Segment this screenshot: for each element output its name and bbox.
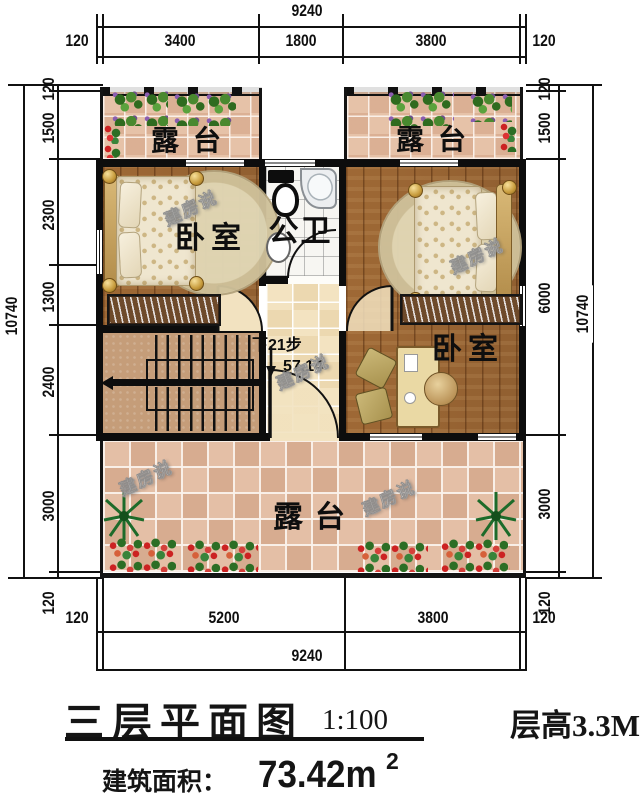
dim-tick: [526, 434, 566, 436]
stair-direction-arrow: [101, 376, 113, 390]
pillow: [118, 181, 142, 228]
plan-scale: 1:100: [322, 704, 388, 737]
bed-post: [102, 169, 117, 184]
dim-right-segment: 6000: [535, 273, 555, 322]
window: [478, 433, 516, 441]
dim-line: [97, 631, 526, 633]
title-underline: [65, 737, 424, 741]
room-label-terrace-top-left: 露台: [148, 119, 238, 159]
dim-line: [97, 26, 526, 28]
dim-tick: [49, 264, 103, 266]
dim-top-segment: 120: [519, 31, 568, 51]
dim-tick: [102, 578, 104, 671]
area-label: 建筑面积：: [102, 762, 227, 798]
flower-pot: [102, 124, 122, 158]
dim-tick: [49, 158, 103, 160]
bathtub: [296, 165, 340, 211]
terrace-wall: [523, 441, 526, 578]
teacup: [404, 392, 416, 404]
toilet-tank: [268, 170, 294, 183]
room-label-bathroom: 公卫: [258, 206, 343, 250]
dim-left-segment: 2300: [39, 190, 59, 239]
dim-left-segment: 1300: [39, 272, 59, 321]
dim-top-segment: 3400: [147, 31, 213, 51]
dim-tick: [49, 571, 103, 573]
dim-right-total: 10740: [573, 285, 593, 342]
area-value: 73.42m: [258, 754, 377, 797]
terrace-wall: [259, 88, 262, 159]
window: [96, 230, 103, 274]
dim-right-segment: 3000: [535, 479, 555, 528]
dim-left-segment: 1500: [39, 103, 59, 152]
wardrobe: [107, 294, 221, 326]
door-arc: [344, 284, 394, 333]
dim-tick: [526, 571, 566, 573]
room-label-bedroom-right: 卧室: [423, 324, 513, 368]
flower-pot: [498, 122, 520, 152]
window: [370, 433, 422, 441]
dim-tick: [526, 158, 566, 160]
terrace-wall: [100, 573, 526, 578]
bed-post: [189, 276, 204, 291]
dim-bottom-segment: 120: [52, 608, 101, 628]
dim-line: [97, 56, 526, 58]
dim-tick: [342, 14, 344, 64]
dim-right-segment: 1500: [535, 103, 555, 152]
dim-left-total: 10740: [2, 287, 22, 344]
dim-left-segment: 2400: [39, 357, 59, 406]
palm-plant: [474, 490, 518, 542]
bed-post: [502, 180, 517, 195]
floor-height: 层高3.3M: [508, 700, 640, 745]
dim-tick: [258, 14, 260, 64]
terrace-wall: [344, 88, 347, 159]
dim-line: [23, 85, 25, 578]
dim-top-segment: 120: [52, 31, 101, 51]
stair-divider: [112, 379, 259, 386]
pillow: [118, 231, 142, 278]
bed-post: [408, 183, 423, 198]
dim-bottom-segment: 3800: [400, 608, 466, 628]
flower-bed: [186, 540, 258, 572]
dim-bottom-segment: 5200: [191, 608, 257, 628]
terrace-wall: [520, 88, 523, 159]
bed-post: [189, 171, 204, 186]
wall: [96, 159, 103, 441]
floor-plan-canvas: 9240 120 3400 1800 3800 120 120 1500 230…: [0, 0, 640, 799]
dim-top-segment: 3800: [398, 31, 464, 51]
area-exponent: 2: [386, 748, 399, 775]
room-label-terrace-top-right: 露台: [393, 118, 483, 158]
terrace-door-left: [186, 159, 244, 167]
dim-left-segment: 3000: [39, 481, 59, 530]
wardrobe: [400, 294, 522, 325]
terrace-door-right: [400, 159, 458, 167]
flower-bed: [356, 541, 428, 572]
dim-bottom-total: 9240: [258, 646, 356, 666]
chair: [424, 372, 458, 406]
dim-line: [97, 669, 526, 671]
dim-top-segment: 1800: [268, 31, 334, 51]
dim-tick: [49, 434, 103, 436]
flower-bed: [108, 538, 176, 572]
dim-tick: [102, 14, 104, 64]
bed-post: [102, 278, 117, 293]
desk-lamp: [404, 354, 418, 372]
dim-bottom-segment: 120: [519, 608, 568, 628]
flower-bed: [440, 539, 510, 572]
dim-tick: [49, 324, 103, 326]
